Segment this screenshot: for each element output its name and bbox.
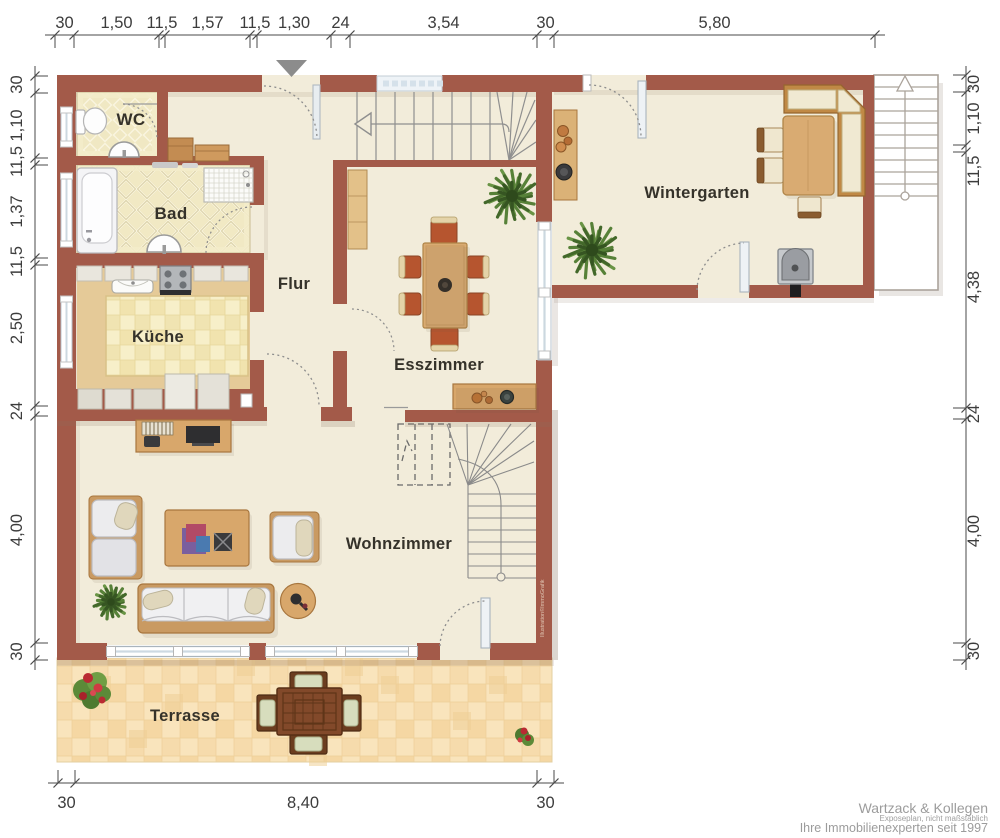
svg-text:Bad: Bad [154, 204, 187, 223]
svg-text:4,00: 4,00 [965, 515, 983, 547]
svg-text:1,10: 1,10 [965, 102, 983, 134]
svg-text:2,50: 2,50 [8, 312, 26, 344]
svg-text:4,00: 4,00 [8, 514, 26, 546]
svg-text:Wohnzimmer: Wohnzimmer [346, 535, 453, 553]
svg-text:1,30: 1,30 [278, 14, 310, 32]
svg-text:WC: WC [117, 110, 146, 129]
svg-text:1,10: 1,10 [8, 109, 26, 141]
svg-text:Ihre Immobilienexperten seit 1: Ihre Immobilienexperten seit 1997 [800, 821, 988, 835]
svg-text:Terrasse: Terrasse [150, 707, 220, 725]
svg-text:3,54: 3,54 [427, 14, 459, 32]
svg-text:Küche: Küche [132, 328, 184, 346]
svg-text:30: 30 [8, 75, 26, 93]
svg-text:11,5: 11,5 [8, 146, 26, 177]
svg-text:11,5: 11,5 [965, 156, 983, 187]
svg-text:1,57: 1,57 [191, 14, 223, 32]
svg-text:30: 30 [965, 75, 983, 93]
svg-text:24: 24 [331, 14, 349, 32]
svg-text:Flur: Flur [278, 275, 311, 293]
svg-text:24: 24 [965, 405, 983, 423]
svg-text:8,40: 8,40 [287, 794, 319, 812]
svg-text:24: 24 [8, 402, 26, 420]
svg-text:11,5: 11,5 [240, 14, 271, 32]
svg-text:30: 30 [55, 14, 73, 32]
svg-text:30: 30 [536, 794, 554, 812]
svg-text:1,50: 1,50 [100, 14, 132, 32]
svg-text:30: 30 [965, 642, 983, 660]
svg-text:Illustration©ImmoGrafik: Illustration©ImmoGrafik [539, 579, 546, 637]
svg-text:30: 30 [57, 794, 75, 812]
svg-text:Esszimmer: Esszimmer [394, 356, 484, 374]
svg-text:30: 30 [8, 642, 26, 660]
svg-text:30: 30 [536, 14, 554, 32]
svg-text:4,38: 4,38 [965, 271, 983, 303]
svg-text:11,5: 11,5 [147, 14, 178, 32]
svg-text:Wintergarten: Wintergarten [644, 184, 749, 202]
svg-text:1,37: 1,37 [8, 195, 26, 227]
svg-text:11,5: 11,5 [8, 246, 26, 277]
svg-text:5,80: 5,80 [698, 14, 730, 32]
